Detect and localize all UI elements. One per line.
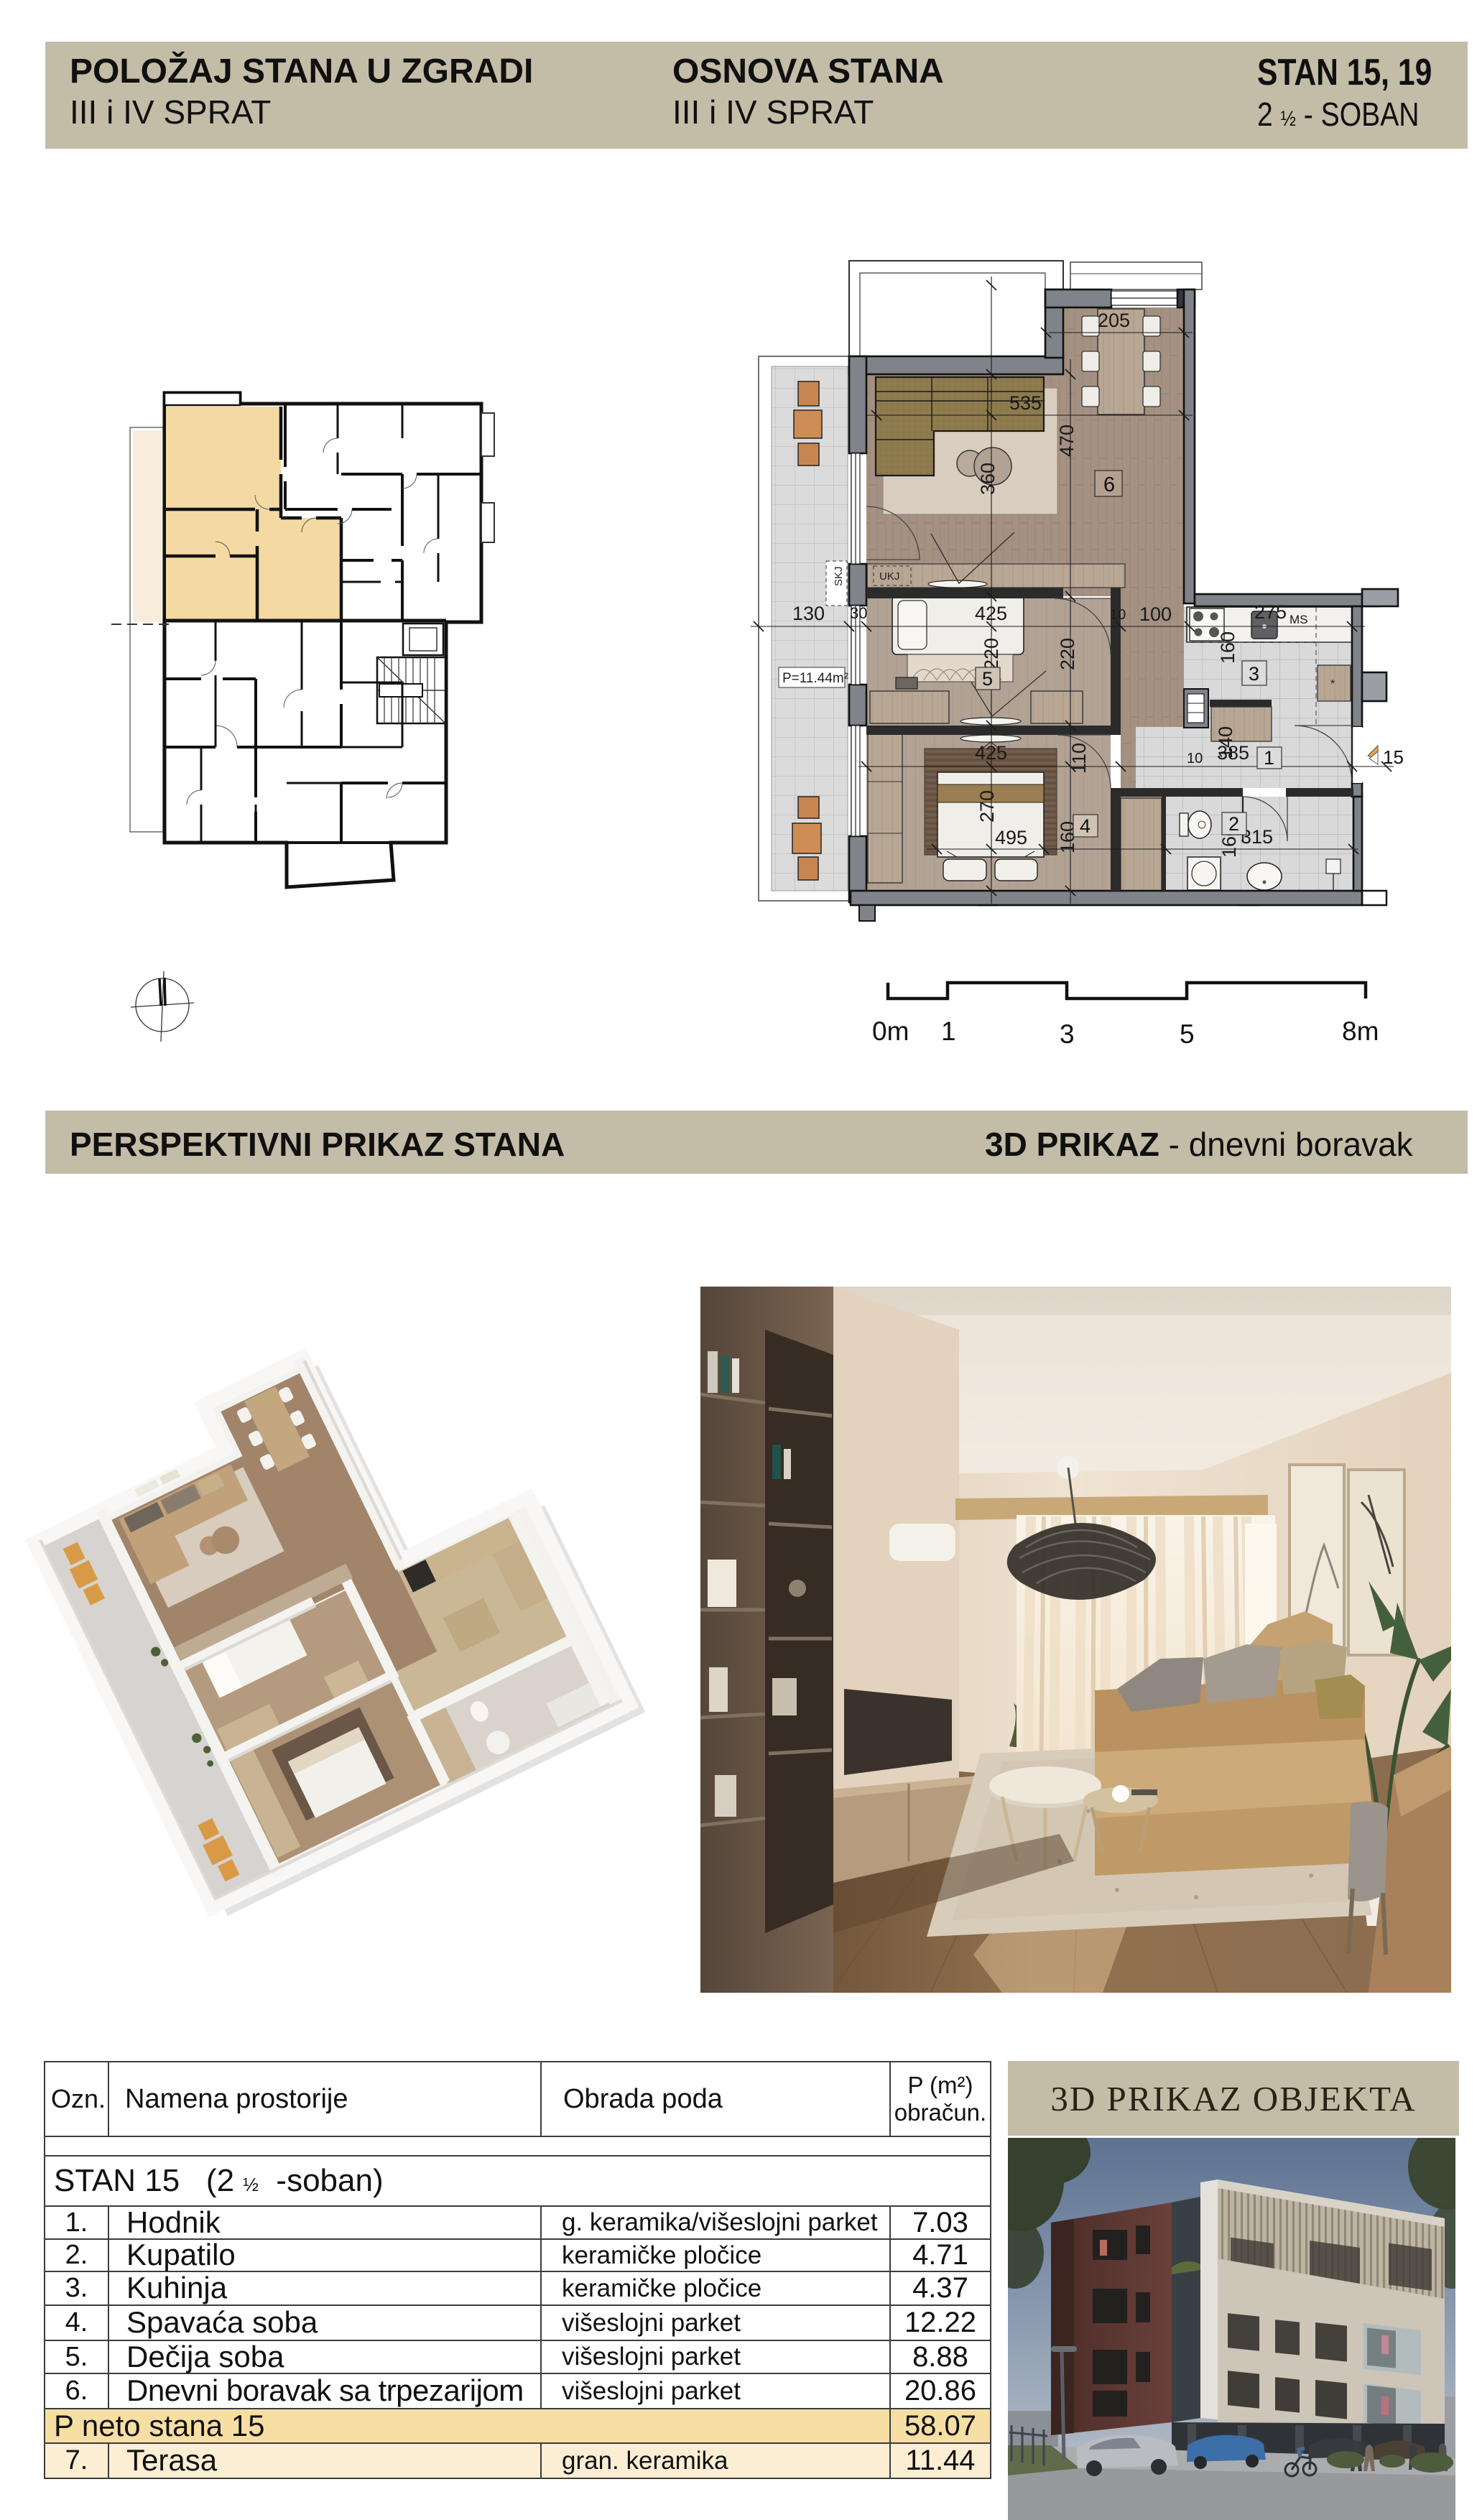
svg-text:470: 470 [1056,425,1078,457]
svg-text:0m: 0m [872,1016,909,1046]
svg-text:205: 205 [1098,310,1130,331]
svg-text:360: 360 [977,463,999,495]
svg-text:2: 2 [1228,813,1239,835]
svg-text:*: * [1330,678,1335,690]
svg-text:425: 425 [975,603,1007,624]
svg-text:275: 275 [1254,601,1287,623]
svg-text:425: 425 [975,742,1007,764]
svg-text:8m: 8m [1342,1016,1379,1046]
svg-text:UKJ: UKJ [879,570,899,583]
svg-text:130: 130 [792,603,825,624]
svg-text:MS: MS [1290,613,1308,626]
svg-text:495: 495 [995,827,1027,848]
svg-text:5: 5 [982,668,993,690]
svg-text:1: 1 [1264,747,1274,769]
svg-text:270: 270 [976,790,998,823]
svg-text:110: 110 [1068,743,1090,774]
svg-text:3: 3 [1249,663,1259,685]
svg-text:100: 100 [1139,603,1172,625]
svg-text:10: 10 [1110,607,1126,623]
svg-text:1: 1 [941,1016,956,1046]
svg-text:4: 4 [1080,815,1091,837]
svg-text:15: 15 [1383,746,1404,768]
svg-text:P=11.44m²: P=11.44m² [782,671,848,686]
svg-text:30: 30 [850,604,867,622]
svg-text:SKJ: SKJ [833,566,845,586]
svg-text:10: 10 [1187,751,1203,766]
svg-text:535: 535 [1009,392,1042,414]
svg-text:385: 385 [1217,742,1249,764]
svg-text:220: 220 [1057,638,1078,670]
svg-text:160: 160 [1217,631,1238,664]
svg-text:5: 5 [1180,1019,1195,1049]
svg-text:3: 3 [1060,1019,1075,1049]
svg-text:6: 6 [1103,473,1115,496]
svg-text:220: 220 [981,638,1002,670]
